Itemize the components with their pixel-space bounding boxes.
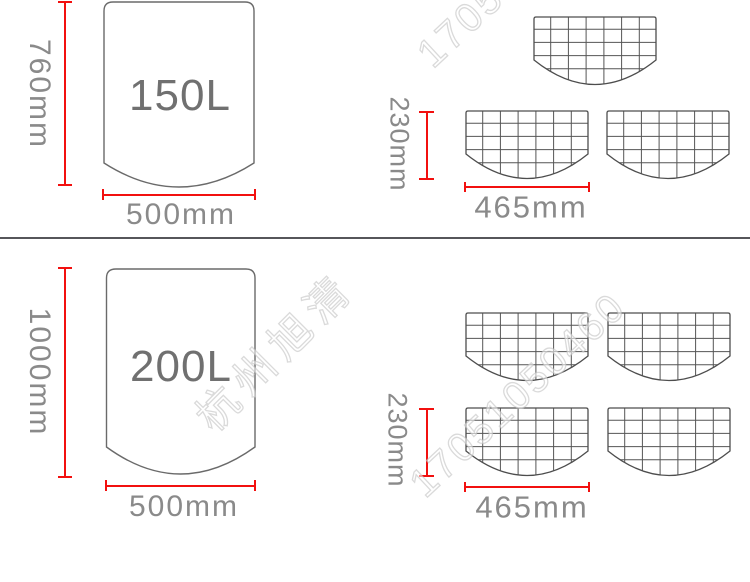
bottom-mesh-height-label: 230mm	[384, 392, 411, 487]
mesh-bag-figure	[465, 407, 589, 477]
top-mesh-height-dimension-line	[426, 112, 428, 179]
bottom-mesh-width-dimension-line	[465, 486, 589, 488]
mesh-bag-figure	[607, 407, 731, 477]
bottom-barrel-height-label: 1000mm	[24, 308, 54, 437]
mesh-bag-figure	[606, 110, 730, 180]
bottom-barrel-width-right-tick	[254, 480, 256, 491]
top-barrel-width-left-tick	[102, 189, 104, 200]
bottom-mesh-width-left-tick	[464, 482, 466, 492]
top-barrel-height-dimension-line	[64, 2, 66, 186]
bottom-barrel-width-label: 500mm	[129, 492, 239, 522]
top-barrel-height-top-tick	[58, 1, 72, 3]
mesh-bag-figure	[607, 312, 731, 382]
mesh-bag-figure	[465, 312, 589, 382]
top-mesh-height-top-tick	[419, 111, 434, 113]
top-mesh-width-label: 465mm	[474, 192, 587, 223]
bottom-barrel-height-top-tick	[58, 267, 72, 269]
top-barrel-width-right-tick	[254, 189, 256, 200]
bottom-mesh-height-dimension-line	[426, 409, 428, 476]
top-mesh-width-right-tick	[588, 182, 590, 192]
top-mesh-width-left-tick	[464, 182, 466, 192]
top-mesh-height-bottom-tick	[419, 178, 434, 180]
bottom-mesh-height-bottom-tick	[419, 475, 434, 477]
bottom-barrel-width-dimension-line	[106, 485, 256, 487]
barrel-150l-volume-label: 150L	[129, 74, 231, 118]
bottom-mesh-width-label: 465mm	[475, 492, 588, 523]
top-barrel-width-label: 500mm	[126, 200, 236, 230]
bottom-barrel-height-bottom-tick	[58, 476, 72, 478]
top-barrel-width-dimension-line	[103, 194, 255, 196]
top-mesh-height-label: 230mm	[386, 96, 413, 191]
top-barrel-height-label: 760mm	[24, 39, 54, 149]
barrel-200l-volume-label: 200L	[130, 345, 232, 389]
mesh-bag-figure	[465, 110, 589, 180]
mesh-bag-figure	[533, 16, 657, 86]
bottom-barrel-height-dimension-line	[64, 268, 66, 477]
section-divider	[0, 237, 750, 239]
top-barrel-height-bottom-tick	[58, 184, 72, 186]
top-mesh-width-dimension-line	[465, 186, 589, 188]
bottom-mesh-height-top-tick	[419, 408, 434, 410]
bottom-barrel-width-left-tick	[105, 480, 107, 491]
product-dimension-diagram: 760mm 150L 500mm 230mm 465mm 1000mm 200L…	[0, 0, 750, 582]
